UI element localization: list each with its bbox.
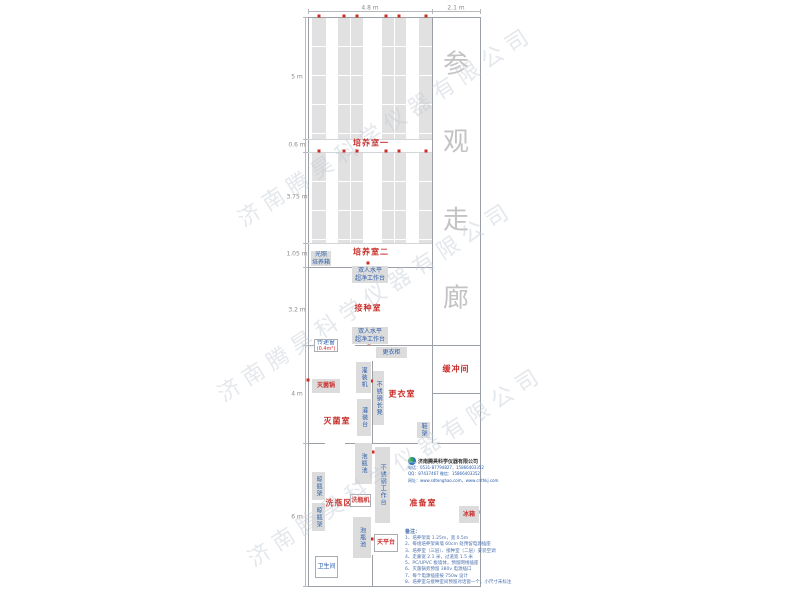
equip-filling-table: 灌装台 xyxy=(357,399,371,436)
wall xyxy=(432,17,433,443)
note-item: 3、培养室（三层）、接种室（二层）安装空调 xyxy=(405,549,485,555)
dimension-tick xyxy=(303,443,308,444)
wall xyxy=(437,443,481,444)
culture-rack xyxy=(312,18,326,139)
wall xyxy=(480,17,481,587)
dimension-tick xyxy=(303,243,308,244)
company-name: 济南腾昊科学仪器有限公司 xyxy=(418,458,478,465)
room-label-sterilization-room: 灭菌室 xyxy=(324,416,351,427)
notes-block: 备注： 1、培养架高 1.25m，宽 0.5m 2、每组培养架离墙 60cm 处… xyxy=(405,528,485,586)
outlet-dot xyxy=(385,150,388,153)
room-label-inoculation-room: 接种室 xyxy=(355,303,382,314)
company-logo-icon xyxy=(408,457,416,465)
equip-bottle-washer: 洗瓶机 xyxy=(350,494,371,507)
company-qq: QQ：87437467 微信：15866403352 xyxy=(408,471,484,477)
culture-rack xyxy=(419,18,432,139)
visit-corridor-label: 走 xyxy=(443,200,469,237)
equip-toilet: 卫生间 xyxy=(315,556,338,578)
equip-ss-worktable: 不锈钢工作台 xyxy=(375,447,390,523)
dimension-label: 6 m xyxy=(291,514,303,521)
dimension-label: 3.2 m xyxy=(288,307,305,314)
equip-pass-window-size: (0.4m²) xyxy=(317,346,336,352)
dimension-tick xyxy=(303,586,308,587)
culture-rack xyxy=(419,153,432,243)
room-label-culture-room-2: 培养室二 xyxy=(353,247,389,258)
dimension-tick xyxy=(432,9,433,14)
dimension-label: 2.1 m xyxy=(447,5,464,12)
outlet-dot xyxy=(385,15,388,18)
dimension-label: 1.05 m xyxy=(286,251,307,258)
dimension-tick xyxy=(303,152,308,153)
dimension-line-left xyxy=(305,17,306,586)
visit-corridor-label: 参 xyxy=(443,44,469,81)
equip-locker: 更衣柜 xyxy=(376,347,407,358)
wall xyxy=(432,393,481,394)
room-label-buffer-room: 缓冲间 xyxy=(443,364,470,375)
rack-divider xyxy=(350,153,351,243)
equip-light-incubator: 光照 培养箱 xyxy=(311,251,331,266)
rack-divider xyxy=(394,153,395,243)
dimension-tick xyxy=(480,9,481,14)
dimension-tick xyxy=(303,17,308,18)
room-label-culture-room-1: 培养室一 xyxy=(353,138,389,149)
wall xyxy=(355,345,481,346)
equip-soak-pool-2: 泡瓶池 xyxy=(353,517,371,558)
dimension-label: 0.6 m xyxy=(288,142,305,149)
room-label-changing-room: 更衣室 xyxy=(389,389,416,400)
outlet-dot xyxy=(318,150,321,153)
equip-balance-table: 天平台 xyxy=(374,534,398,552)
rack-divider xyxy=(350,18,351,139)
outlet-dot xyxy=(425,150,428,153)
outlet-dot xyxy=(356,15,359,18)
equip-bottle-rack-2: 晾瓶架 xyxy=(312,503,325,531)
floor-plan: 济南腾昊科学仪器有限公司 电话：0531-87794827，1586640335… xyxy=(0,0,800,600)
wall xyxy=(308,17,481,18)
room-label-bottle-washing-area: 洗瓶区 xyxy=(326,498,353,509)
notes-heading: 备注： xyxy=(405,528,485,535)
rack-divider xyxy=(394,18,395,139)
outlet-dot xyxy=(356,150,359,153)
outlet-dot xyxy=(398,15,401,18)
outlet-dot xyxy=(343,150,346,153)
outlet-dot xyxy=(307,379,310,382)
dimension-tick xyxy=(303,139,308,140)
dimension-label: 4.8 m xyxy=(361,5,378,12)
dimension-label: 4 m xyxy=(291,391,303,398)
culture-rack xyxy=(312,153,326,243)
equip-shoe-rack: 鞋架 xyxy=(417,422,430,438)
company-website: 网址：www.sdtenghao.com，www.cnthkj.com xyxy=(408,478,484,484)
equip-filling-machine: 灌装机 xyxy=(356,362,371,393)
note-item: 8、培养室与接种室间预留对话窗一个，小尺寸未标注 xyxy=(405,580,485,586)
outlet-dot xyxy=(318,15,321,18)
outlet-dot xyxy=(367,262,370,265)
room-label-prep-room: 准备室 xyxy=(410,498,437,509)
outlet-dot xyxy=(343,15,346,18)
equip-fridge: 冰箱 xyxy=(459,506,479,523)
wall xyxy=(308,152,432,153)
visit-corridor-label: 观 xyxy=(443,122,469,159)
dimension-tick xyxy=(308,9,309,14)
dimension-label: 3.75 m xyxy=(286,194,307,201)
dimension-label: 5 m xyxy=(291,74,303,81)
equip-clean-bench-1: 双人水平 超净工作台 xyxy=(352,266,388,283)
equip-ss-bench: 不锈钢长凳 xyxy=(373,371,384,425)
equip-bottle-rack-1: 晾瓶架 xyxy=(312,472,325,500)
equip-soak-pool-1: 泡瓶池 xyxy=(355,443,372,484)
dimension-tick xyxy=(303,267,308,268)
note-item: 2、每组培养架离墙 60cm 处预留电源插座 xyxy=(405,542,485,548)
dimension-tick xyxy=(303,345,308,346)
equip-clean-bench-2: 双人水平 超净工作台 xyxy=(352,327,388,344)
equip-pass-window: 传递窗(0.4m²) xyxy=(314,339,338,352)
outlet-dot xyxy=(425,15,428,18)
outlet-dot xyxy=(398,150,401,153)
wall xyxy=(308,443,325,444)
company-block: 济南腾昊科学仪器有限公司 电话：0531-87794827，1586640335… xyxy=(408,457,484,484)
wall xyxy=(308,243,432,244)
wall xyxy=(308,17,309,587)
wall xyxy=(372,555,373,586)
visit-corridor-label: 廊 xyxy=(443,278,469,315)
equip-sterilizer: 灭菌锅 xyxy=(312,379,340,393)
